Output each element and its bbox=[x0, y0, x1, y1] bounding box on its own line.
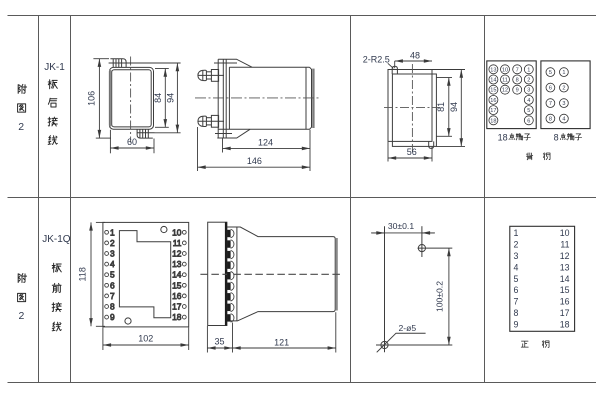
svg-text:121: 121 bbox=[274, 337, 289, 347]
svg-text:94: 94 bbox=[166, 93, 176, 103]
svg-text:JK-1: JK-1 bbox=[44, 62, 65, 73]
svg-text:16: 16 bbox=[560, 297, 570, 307]
svg-text:3: 3 bbox=[527, 88, 530, 94]
svg-text:30±0.1: 30±0.1 bbox=[388, 221, 414, 231]
svg-text:17: 17 bbox=[490, 108, 496, 114]
svg-text:3: 3 bbox=[514, 251, 519, 261]
svg-text:4: 4 bbox=[514, 262, 519, 272]
svg-text:2: 2 bbox=[110, 238, 115, 248]
svg-text:6: 6 bbox=[527, 118, 530, 124]
svg-text:1: 1 bbox=[110, 227, 115, 237]
svg-text:100±0.2: 100±0.2 bbox=[435, 281, 445, 312]
svg-text:102: 102 bbox=[138, 334, 153, 344]
svg-text:84: 84 bbox=[153, 93, 163, 103]
svg-text:16: 16 bbox=[490, 98, 496, 104]
svg-text:14: 14 bbox=[172, 270, 182, 280]
svg-text:JK-1Q: JK-1Q bbox=[42, 234, 71, 245]
svg-text:2-R2.5: 2-R2.5 bbox=[363, 55, 390, 65]
svg-text:5: 5 bbox=[514, 274, 519, 284]
svg-text:4: 4 bbox=[110, 259, 115, 269]
svg-text:56: 56 bbox=[407, 147, 417, 157]
svg-text:10: 10 bbox=[560, 228, 570, 238]
svg-text:2: 2 bbox=[562, 86, 565, 92]
svg-text:5: 5 bbox=[110, 270, 115, 280]
svg-text:2: 2 bbox=[18, 310, 24, 322]
svg-text:2: 2 bbox=[514, 240, 519, 250]
svg-text:6: 6 bbox=[549, 86, 552, 92]
svg-text:94: 94 bbox=[449, 102, 459, 112]
svg-text:13: 13 bbox=[490, 67, 496, 73]
svg-text:7: 7 bbox=[516, 67, 519, 73]
svg-text:60: 60 bbox=[127, 137, 137, 147]
svg-text:18: 18 bbox=[498, 132, 508, 142]
svg-text:11: 11 bbox=[502, 78, 508, 84]
svg-text:48: 48 bbox=[410, 50, 420, 60]
svg-text:12: 12 bbox=[172, 249, 182, 259]
svg-text:6: 6 bbox=[110, 280, 115, 290]
svg-text:8: 8 bbox=[554, 132, 559, 142]
svg-text:8: 8 bbox=[516, 78, 519, 84]
svg-text:10: 10 bbox=[172, 227, 182, 237]
svg-text:15: 15 bbox=[490, 88, 496, 94]
svg-text:11: 11 bbox=[560, 240, 569, 250]
svg-text:14: 14 bbox=[560, 274, 570, 284]
svg-text:7: 7 bbox=[514, 297, 519, 307]
svg-text:13: 13 bbox=[560, 262, 570, 272]
svg-text:9: 9 bbox=[110, 312, 115, 322]
svg-text:16: 16 bbox=[172, 291, 182, 301]
svg-text:8: 8 bbox=[549, 117, 552, 123]
svg-text:3: 3 bbox=[562, 101, 565, 107]
svg-text:1: 1 bbox=[562, 70, 565, 76]
svg-text:4: 4 bbox=[527, 98, 530, 104]
svg-text:35: 35 bbox=[214, 337, 224, 347]
svg-text:8: 8 bbox=[110, 302, 115, 312]
svg-text:10: 10 bbox=[502, 67, 508, 73]
svg-text:2-ø5: 2-ø5 bbox=[399, 323, 417, 333]
svg-text:9: 9 bbox=[516, 88, 519, 94]
svg-text:7: 7 bbox=[110, 291, 115, 301]
svg-text:18: 18 bbox=[560, 319, 570, 329]
svg-text:17: 17 bbox=[560, 308, 570, 318]
svg-text:118: 118 bbox=[77, 267, 87, 281]
svg-text:18: 18 bbox=[490, 118, 496, 124]
svg-text:5: 5 bbox=[527, 108, 530, 114]
svg-text:18: 18 bbox=[172, 312, 182, 322]
svg-text:124: 124 bbox=[258, 137, 273, 147]
svg-text:4: 4 bbox=[562, 117, 565, 123]
svg-text:15: 15 bbox=[172, 280, 182, 290]
svg-text:2: 2 bbox=[18, 121, 24, 133]
svg-text:12: 12 bbox=[560, 251, 570, 261]
svg-text:5: 5 bbox=[549, 70, 552, 76]
svg-text:12: 12 bbox=[502, 88, 508, 94]
svg-text:11: 11 bbox=[173, 238, 182, 248]
svg-text:6: 6 bbox=[514, 285, 519, 295]
svg-text:81: 81 bbox=[436, 102, 446, 112]
svg-text:1: 1 bbox=[527, 67, 530, 73]
svg-text:13: 13 bbox=[172, 259, 182, 269]
svg-text:2: 2 bbox=[527, 78, 530, 84]
svg-text:3: 3 bbox=[110, 249, 115, 259]
svg-text:17: 17 bbox=[172, 302, 182, 312]
svg-text:15: 15 bbox=[560, 285, 570, 295]
svg-text:1: 1 bbox=[514, 228, 519, 238]
svg-text:14: 14 bbox=[490, 78, 496, 84]
svg-text:106: 106 bbox=[87, 91, 97, 106]
svg-text:7: 7 bbox=[549, 101, 552, 107]
svg-text:146: 146 bbox=[247, 156, 262, 166]
svg-text:8: 8 bbox=[514, 308, 519, 318]
svg-text:9: 9 bbox=[514, 319, 519, 329]
